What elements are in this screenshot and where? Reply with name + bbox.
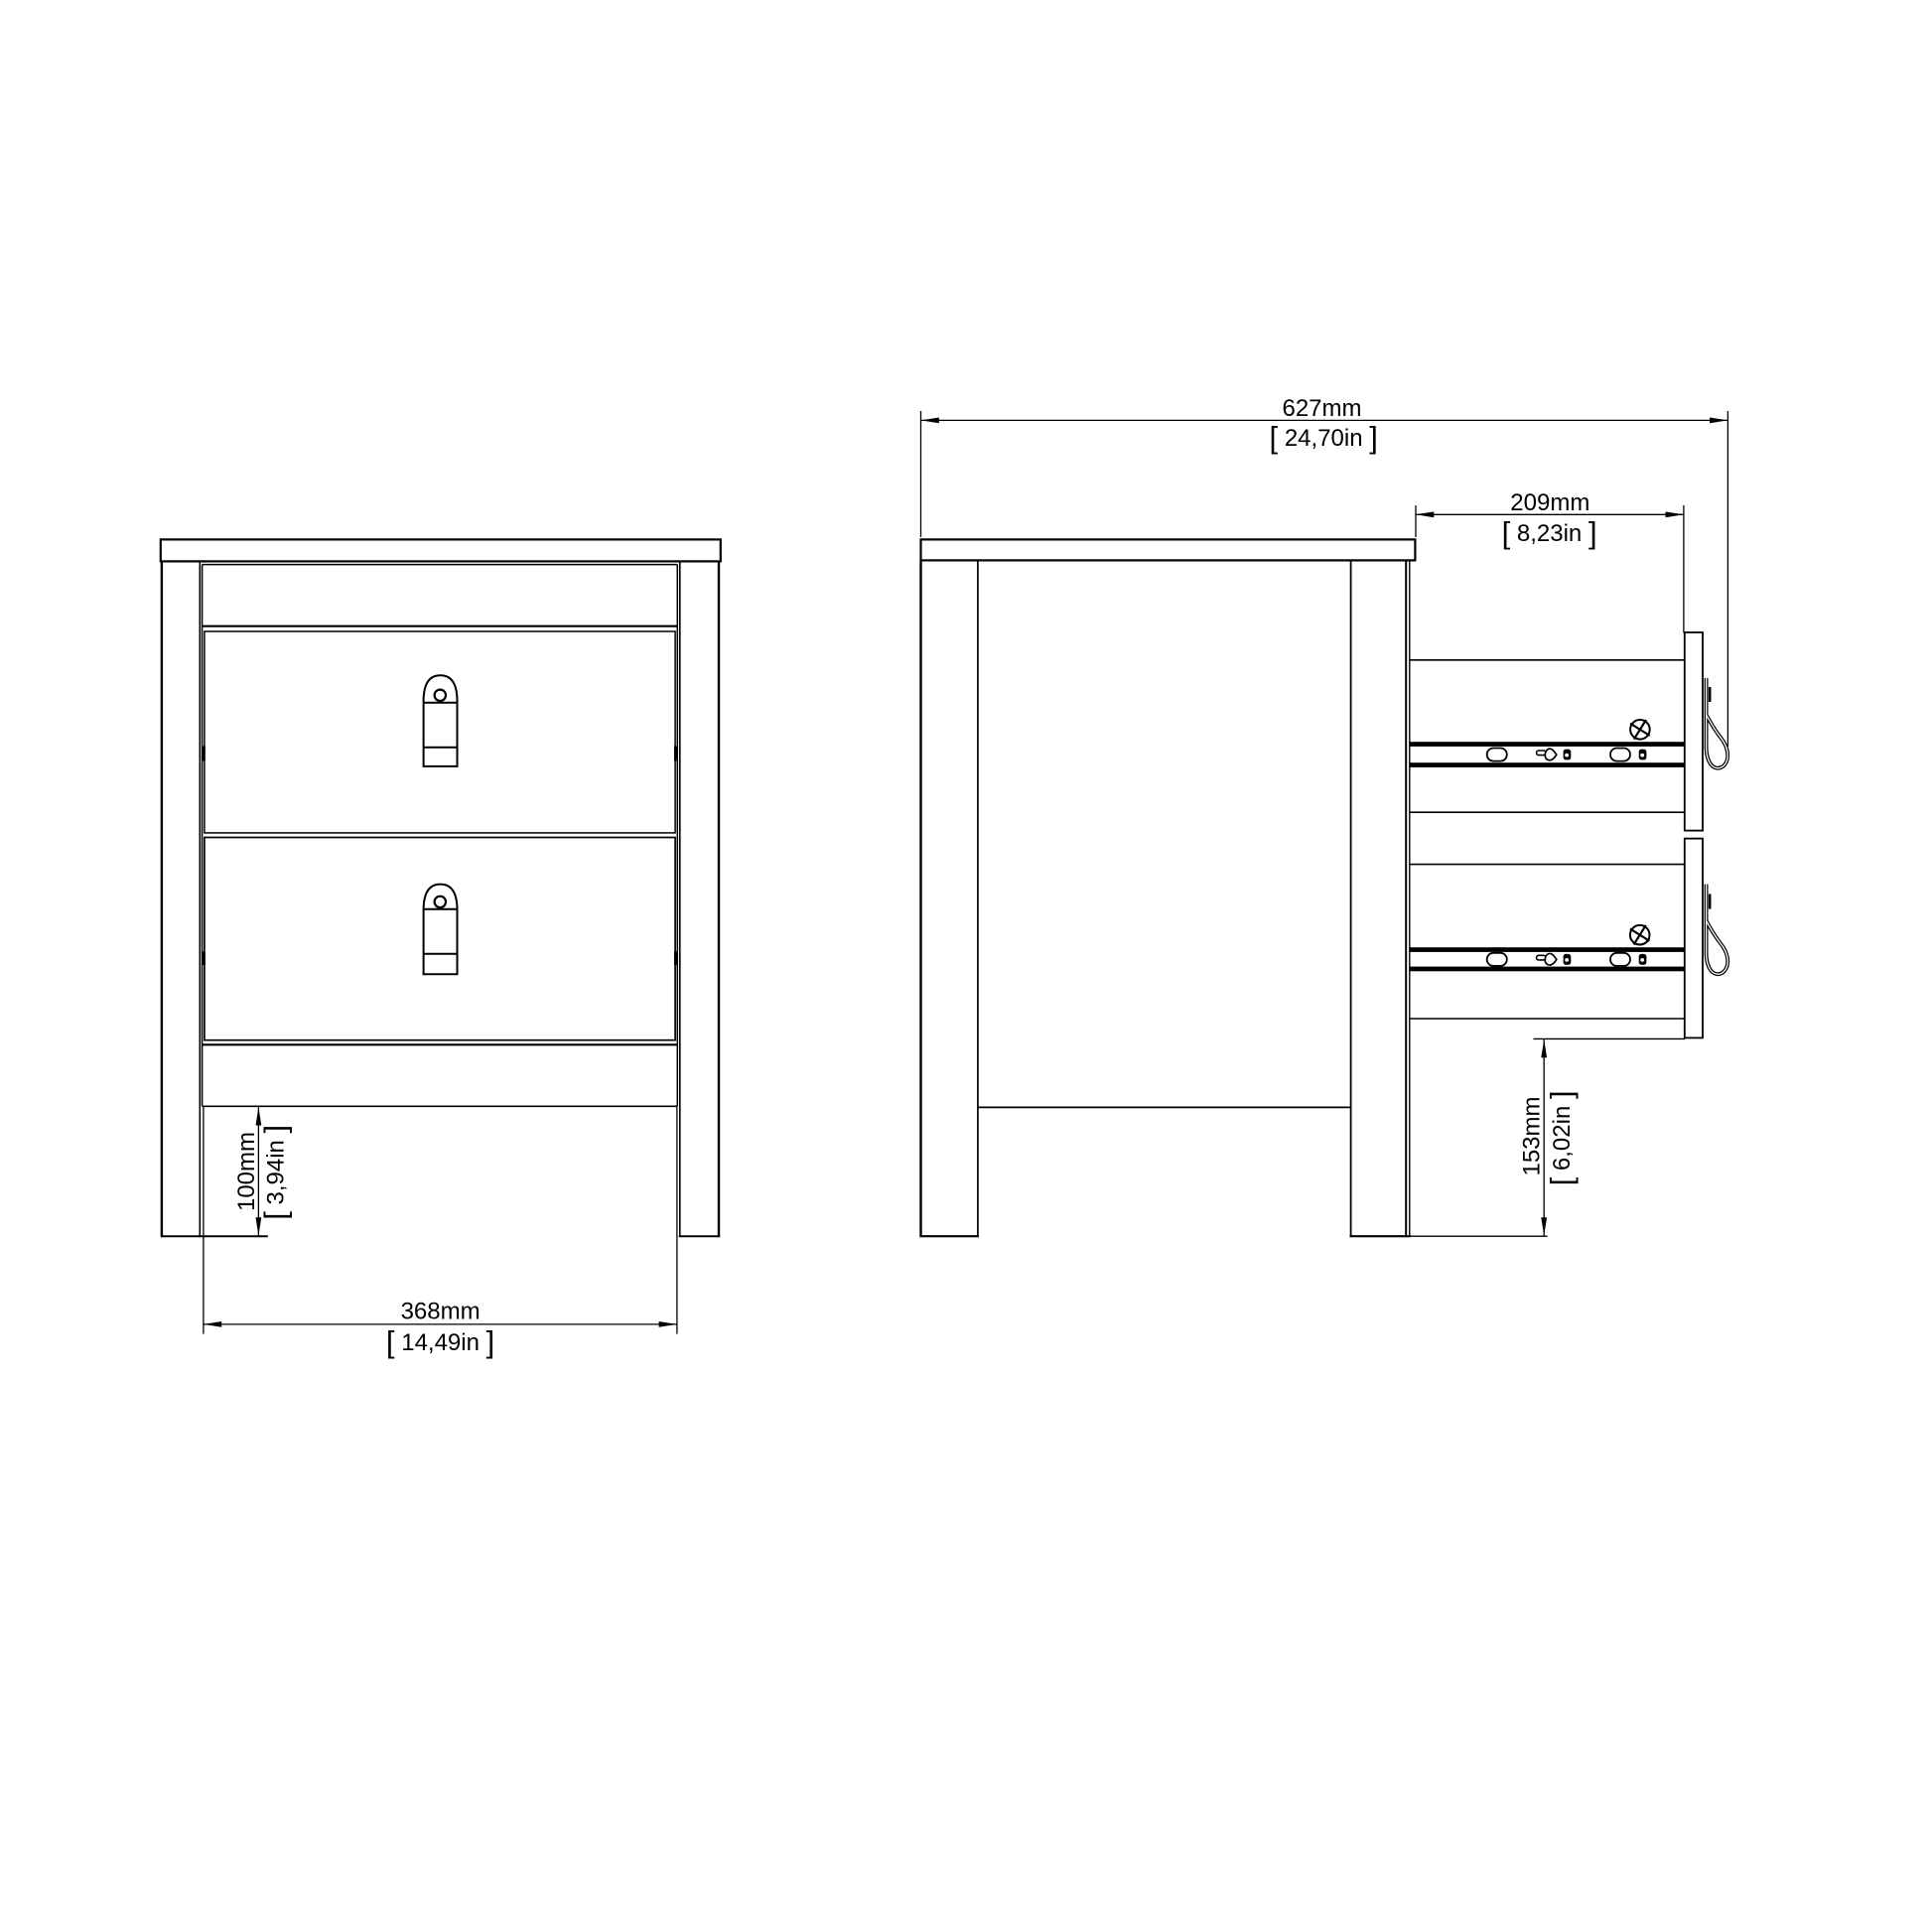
svg-text:100mm: 100mm bbox=[233, 1132, 260, 1211]
svg-text:209mm: 209mm bbox=[1510, 489, 1589, 516]
svg-text:153mm: 153mm bbox=[1519, 1096, 1546, 1175]
svg-text:[ 3,94in ]: [ 3,94in ] bbox=[258, 1125, 293, 1220]
svg-text:[ 24,70in ]: [ 24,70in ] bbox=[1270, 420, 1378, 455]
svg-text:627mm: 627mm bbox=[1282, 395, 1361, 422]
svg-text:368mm: 368mm bbox=[401, 1299, 481, 1325]
svg-text:[ 14,49in ]: [ 14,49in ] bbox=[386, 1324, 494, 1359]
svg-text:[ 6,02in ]: [ 6,02in ] bbox=[1544, 1090, 1579, 1185]
svg-text:[ 8,23in ]: [ 8,23in ] bbox=[1502, 515, 1597, 550]
